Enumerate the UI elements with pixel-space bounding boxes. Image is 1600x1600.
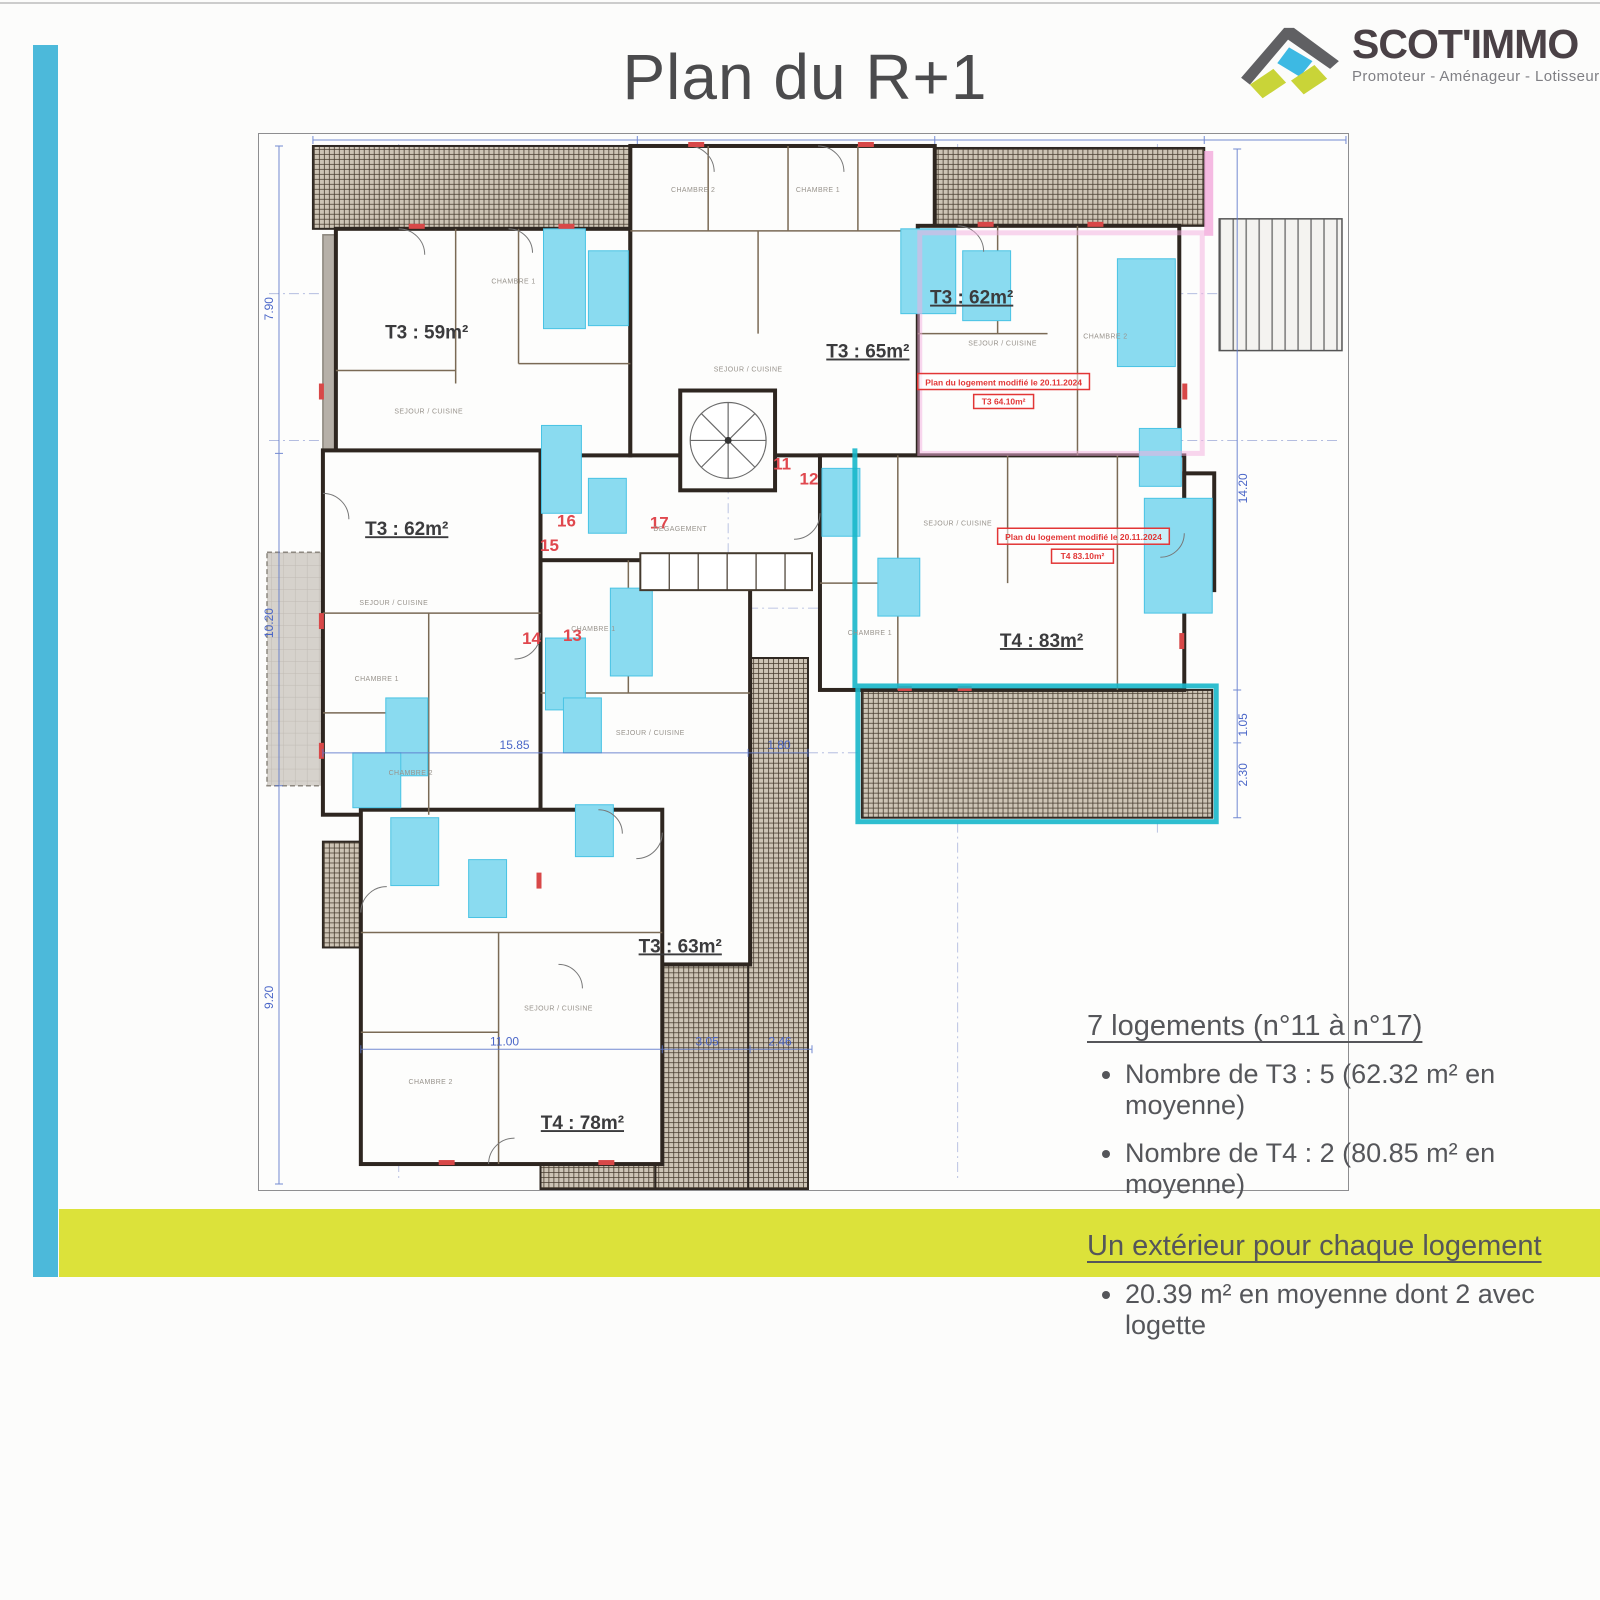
dimension-label: 14.20 [1236, 473, 1250, 503]
dimension-label: 10.20 [262, 608, 276, 638]
room-label: CHAMBRE 2 [671, 187, 715, 194]
room-label: CHAMBRE 1 [571, 626, 615, 633]
left-accent-bar [33, 45, 58, 1277]
dimension-label: 1.80 [767, 738, 791, 752]
dimension-label: 11.00 [490, 1034, 519, 1048]
dimension-label: 9.20 [262, 985, 276, 1009]
apartment-type-label: T3 : 65m² [826, 342, 909, 363]
storage-cells [640, 553, 812, 590]
apartment-type-label: T3 : 62m² [930, 288, 1013, 309]
apartment-type-label: T3 : 59m² [385, 323, 468, 344]
modification-annotation-text: Plan du logement modifié le 20.11.2024 [925, 378, 1082, 388]
room-label: SEJOUR / CUISINE [968, 341, 1037, 348]
summary-block: 7 logements (n°11 à n°17) Nombre de T3 :… [1087, 1010, 1600, 1358]
summary-item-exterieur: 20.39 m² en moyenne dont 2 avec logette [1125, 1279, 1600, 1341]
dimension-label: 2.30 [1236, 763, 1250, 787]
summary-item-t3: Nombre de T3 : 5 (62.32 m² en moyenne) [1125, 1059, 1600, 1121]
room-label: SEJOUR / CUISINE [394, 408, 463, 415]
room-label: CHAMBRE 1 [848, 630, 892, 637]
summary-heading-logements: 7 logements (n°11 à n°17) [1087, 1010, 1600, 1043]
floor-plan-frame: T3 : 59m²T3 : 65m²T3 : 62m²T3 : 62m²T4 :… [258, 133, 1349, 1191]
summary-list-exterieur: 20.39 m² en moyenne dont 2 avec logette [1101, 1279, 1600, 1341]
room-label: DEGAGEMENT [653, 526, 707, 533]
spiral-staircase [690, 402, 766, 478]
dimension-label: 2.46 [768, 1034, 792, 1048]
scan-edge-line [0, 2, 1600, 4]
unit-number: 11 [773, 454, 791, 473]
room-label: SEJOUR / CUISINE [616, 730, 685, 737]
unit-number: 12 [800, 469, 819, 488]
logo-roof-icon [1236, 22, 1344, 115]
page-title: Plan du R+1 [605, 40, 1005, 114]
dimension-label: 3.05 [696, 1034, 720, 1048]
summary-item-t4: Nombre de T4 : 2 (80.85 m² en moyenne) [1125, 1138, 1600, 1200]
dimension-label: 15.85 [500, 738, 530, 752]
room-label: SEJOUR / CUISINE [359, 600, 428, 607]
room-label: CHAMBRE 2 [389, 770, 433, 777]
room-label: CHAMBRE 1 [491, 279, 535, 286]
modification-annotation-text: T3 64.10m² [982, 396, 1026, 406]
room-label: CHAMBRE 1 [796, 187, 840, 194]
dimension-label: 1.05 [1236, 713, 1250, 737]
dimension-label: 7.90 [262, 297, 276, 321]
room-label: CHAMBRE 2 [409, 1079, 453, 1086]
unit-number: 15 [540, 536, 559, 555]
room-label: CHAMBRE 1 [355, 676, 399, 683]
company-logo: SCOT'IMMO Promoteur - Aménageur - Lotiss… [1236, 22, 1599, 115]
scanned-page: Plan du R+1 SCOT'IMMO Promoteur - Aménag… [0, 0, 1600, 1600]
unit-number: 16 [557, 511, 576, 530]
summary-list-logements: Nombre de T3 : 5 (62.32 m² en moyenne) N… [1101, 1059, 1600, 1200]
apartment-type-label: T4 : 78m² [541, 1113, 624, 1134]
apartment-type-label: T3 : 62m² [365, 519, 448, 540]
logo-name: SCOT'IMMO [1352, 22, 1599, 67]
logo-text: SCOT'IMMO Promoteur - Aménageur - Lotiss… [1352, 22, 1599, 85]
room-label: SEJOUR / CUISINE [714, 367, 783, 374]
logo-tagline: Promoteur - Aménageur - Lotisseur [1352, 68, 1599, 85]
modification-annotation-text: Plan du logement modifié le 20.11.2024 [1005, 532, 1162, 542]
room-label: SEJOUR / CUISINE [923, 520, 992, 527]
summary-heading-exterieur: Un extérieur pour chaque logement [1087, 1230, 1600, 1263]
room-label: SEJOUR / CUISINE [524, 1005, 593, 1012]
unit-number: 14 [522, 629, 541, 648]
modification-annotation-text: T4 83.10m² [1061, 551, 1105, 561]
room-label: CHAMBRE 2 [1083, 334, 1127, 341]
apartment-type-label: T3 : 63m² [639, 936, 722, 957]
apartment-type-label: T4 : 83m² [1000, 631, 1083, 652]
